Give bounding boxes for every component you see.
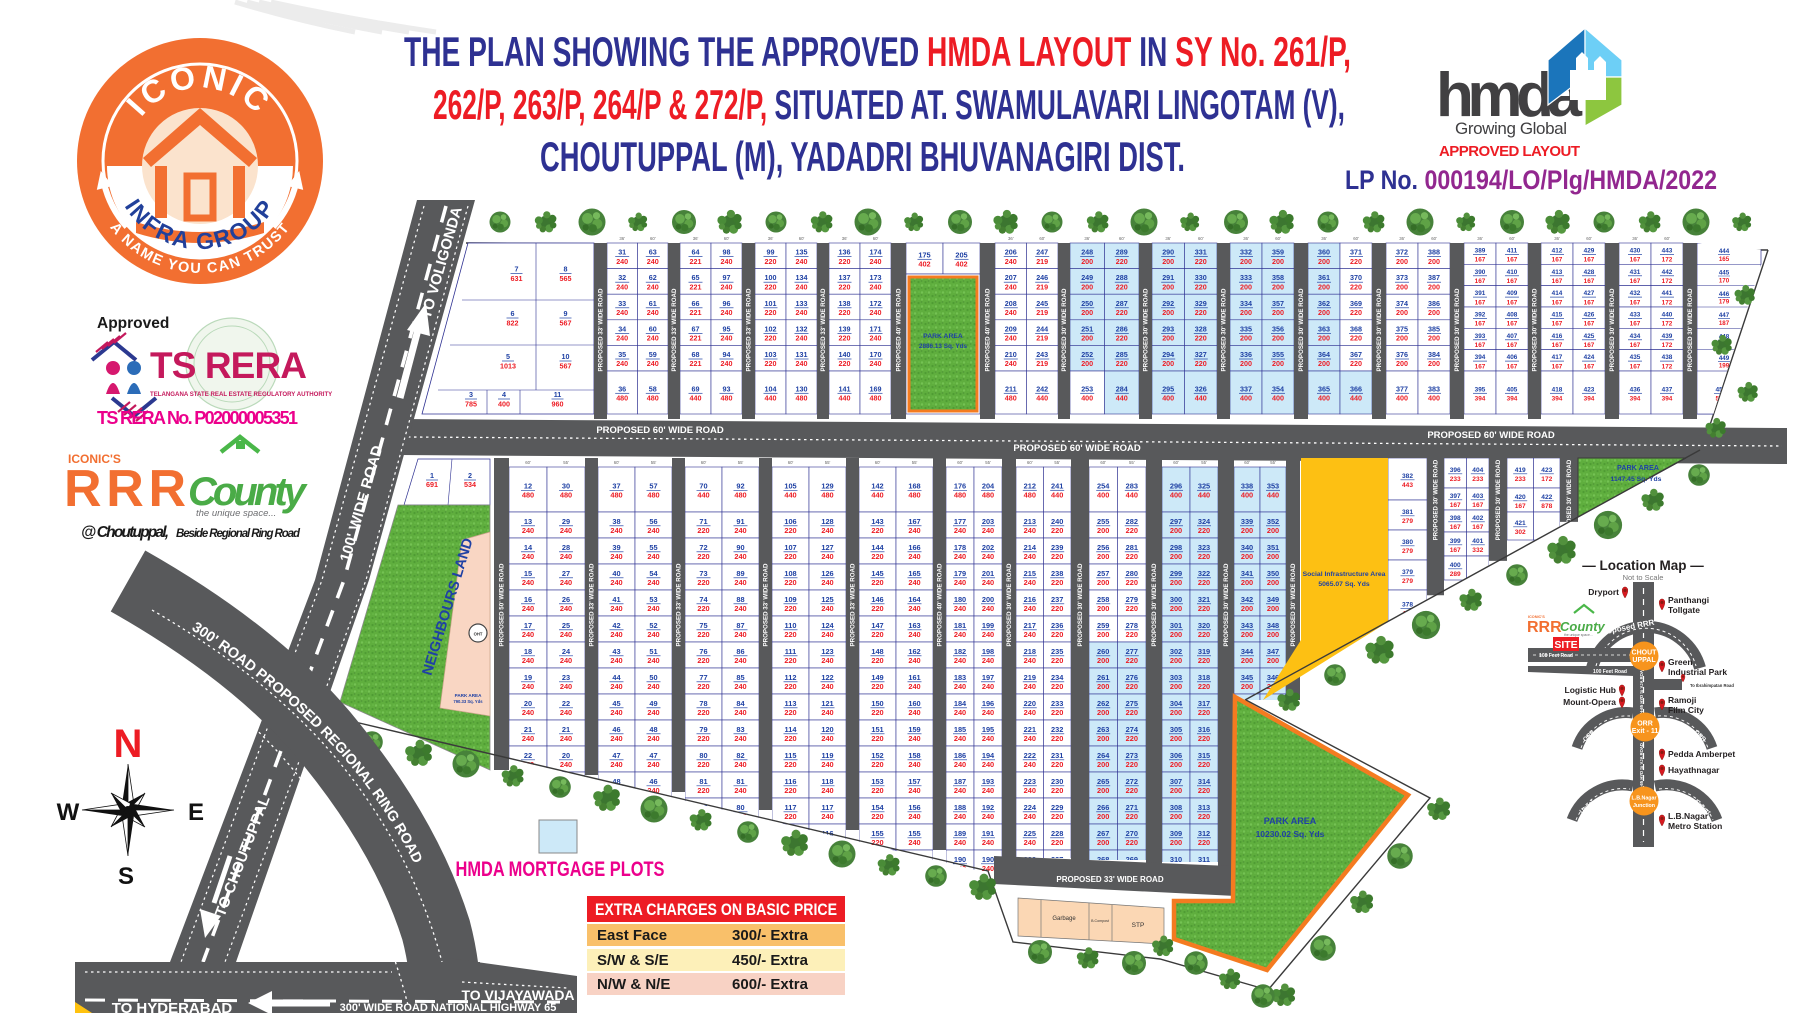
svg-text:411: 411 <box>1507 248 1518 255</box>
svg-text:43: 43 <box>612 647 620 656</box>
svg-text:394: 394 <box>1584 396 1595 403</box>
svg-text:138: 138 <box>839 299 851 308</box>
svg-text:220: 220 <box>1198 838 1210 847</box>
svg-text:213: 213 <box>1024 517 1036 526</box>
svg-text:240: 240 <box>734 708 746 717</box>
svg-text:691: 691 <box>426 480 438 489</box>
svg-text:220: 220 <box>1051 656 1063 665</box>
svg-text:190: 190 <box>954 855 966 864</box>
svg-text:240: 240 <box>734 630 746 639</box>
svg-text:240: 240 <box>647 308 659 317</box>
svg-text:PROPOSED 33' WIDE ROAD: PROPOSED 33' WIDE ROAD <box>850 563 857 646</box>
svg-text:88: 88 <box>736 595 744 604</box>
svg-text:188: 188 <box>954 803 966 812</box>
svg-text:60': 60' <box>525 460 531 465</box>
svg-text:173: 173 <box>870 273 882 282</box>
svg-text:279: 279 <box>1402 578 1413 585</box>
svg-text:167: 167 <box>1552 299 1563 306</box>
svg-text:245: 245 <box>1036 299 1048 308</box>
svg-text:200: 200 <box>1170 812 1182 821</box>
svg-text:105: 105 <box>784 481 796 490</box>
svg-text:200: 200 <box>1097 708 1109 717</box>
svg-text:240: 240 <box>1024 604 1036 613</box>
svg-text:437: 437 <box>1662 386 1673 393</box>
svg-text:NH-65 HYD to VJA ROAD: NH-65 HYD to VJA ROAD <box>1639 743 1644 793</box>
svg-text:23: 23 <box>562 673 570 682</box>
svg-text:240: 240 <box>1024 578 1036 587</box>
svg-text:SITE: SITE <box>1554 639 1577 651</box>
svg-text:347: 347 <box>1267 647 1279 656</box>
svg-text:60': 60' <box>1100 460 1106 465</box>
svg-text:480: 480 <box>870 394 882 403</box>
svg-text:299: 299 <box>1170 569 1182 578</box>
svg-text:74: 74 <box>699 595 708 604</box>
svg-text:200: 200 <box>1097 734 1109 743</box>
svg-text:420: 420 <box>1515 494 1526 501</box>
svg-text:480: 480 <box>821 491 833 500</box>
svg-text:PROPOSED 30' WIDE ROAD: PROPOSED 30' WIDE ROAD <box>1567 459 1573 540</box>
svg-text:386: 386 <box>1428 299 1440 308</box>
svg-text:65: 65 <box>692 273 700 282</box>
svg-text:255: 255 <box>1097 517 1109 526</box>
svg-text:240: 240 <box>1024 682 1036 691</box>
svg-text:240: 240 <box>796 359 808 368</box>
svg-text:240: 240 <box>870 282 882 291</box>
svg-text:410: 410 <box>1507 269 1518 276</box>
svg-text:62: 62 <box>649 273 657 282</box>
svg-text:394: 394 <box>1552 396 1563 403</box>
svg-text:416: 416 <box>1552 333 1563 340</box>
svg-text:STP: STP <box>1132 922 1145 929</box>
svg-text:195: 195 <box>982 725 994 734</box>
svg-text:RRR: RRR <box>64 460 186 518</box>
svg-text:PROPOSED 40' WIDE ROAD: PROPOSED 40' WIDE ROAD <box>896 288 903 371</box>
svg-text:220: 220 <box>1198 786 1210 795</box>
svg-text:314: 314 <box>1198 777 1211 786</box>
svg-text:240: 240 <box>954 734 966 743</box>
svg-text:240: 240 <box>982 786 994 795</box>
svg-text:220: 220 <box>1350 359 1362 368</box>
svg-text:320: 320 <box>1198 621 1210 630</box>
svg-text:240: 240 <box>870 359 882 368</box>
svg-text:162: 162 <box>908 647 920 656</box>
svg-text:394: 394 <box>1507 396 1518 403</box>
svg-text:321: 321 <box>1198 595 1210 604</box>
svg-text:440: 440 <box>1198 491 1210 500</box>
svg-text:144: 144 <box>871 543 884 552</box>
svg-text:167: 167 <box>1475 257 1486 264</box>
svg-text:145: 145 <box>871 569 883 578</box>
svg-text:183: 183 <box>954 673 966 682</box>
svg-text:175: 175 <box>918 250 930 259</box>
svg-text:137: 137 <box>839 273 851 282</box>
svg-text:189: 189 <box>954 829 966 838</box>
svg-text:167: 167 <box>1552 321 1563 328</box>
svg-text:9: 9 <box>564 309 568 318</box>
svg-text:240: 240 <box>616 308 628 317</box>
svg-text:291: 291 <box>1162 273 1174 282</box>
svg-text:240: 240 <box>647 334 659 343</box>
svg-text:326: 326 <box>1195 384 1207 393</box>
svg-text:352: 352 <box>1267 517 1279 526</box>
svg-text:436: 436 <box>1630 386 1641 393</box>
svg-text:319: 319 <box>1198 647 1210 656</box>
svg-text:200: 200 <box>1241 526 1253 535</box>
svg-text:PROPOSED 33' WIDE ROAD: PROPOSED 33' WIDE ROAD <box>820 288 827 371</box>
svg-text:36': 36' <box>1084 236 1090 241</box>
svg-text:328: 328 <box>1195 324 1207 333</box>
svg-text:278: 278 <box>1126 621 1138 630</box>
svg-text:60': 60' <box>1353 236 1359 241</box>
svg-text:378: 378 <box>1402 601 1413 608</box>
svg-text:36': 36' <box>693 236 699 241</box>
svg-text:112: 112 <box>785 673 797 682</box>
svg-text:365: 365 <box>1318 384 1330 393</box>
svg-text:21: 21 <box>562 725 570 734</box>
svg-text:375: 375 <box>1396 324 1408 333</box>
svg-text:220: 220 <box>1024 699 1036 708</box>
svg-text:L.B.Nagar: L.B.Nagar <box>1631 796 1656 802</box>
svg-text:240: 240 <box>954 682 966 691</box>
svg-text:240: 240 <box>734 760 746 769</box>
svg-text:81: 81 <box>736 777 744 786</box>
svg-text:6: 6 <box>511 309 515 318</box>
svg-text:163: 163 <box>908 621 920 630</box>
svg-text:200: 200 <box>1170 578 1182 587</box>
svg-text:L.B.Nagar: L.B.Nagar <box>1668 811 1709 821</box>
svg-text:219: 219 <box>1036 334 1048 343</box>
svg-text:59: 59 <box>649 350 657 359</box>
svg-text:PROPOSED 33' WIDE ROAD: PROPOSED 33' WIDE ROAD <box>589 563 596 646</box>
svg-text:107: 107 <box>784 543 796 552</box>
svg-text:240: 240 <box>647 734 659 743</box>
svg-text:89: 89 <box>736 569 744 578</box>
svg-text:407: 407 <box>1507 333 1518 340</box>
svg-text:240: 240 <box>647 656 659 665</box>
svg-text:240: 240 <box>982 526 994 535</box>
svg-text:427: 427 <box>1584 290 1595 297</box>
svg-text:413: 413 <box>1552 269 1563 276</box>
svg-text:359: 359 <box>1272 248 1284 257</box>
svg-text:167: 167 <box>1475 342 1486 349</box>
svg-text:403: 403 <box>1472 493 1483 500</box>
svg-text:349: 349 <box>1267 595 1279 604</box>
svg-text:447: 447 <box>1719 312 1730 319</box>
svg-text:237: 237 <box>1051 595 1063 604</box>
svg-text:200: 200 <box>1081 282 1093 291</box>
svg-text:167: 167 <box>1552 363 1563 370</box>
svg-text:PROPOSED 60' WIDE ROAD: PROPOSED 60' WIDE ROAD <box>596 425 724 436</box>
svg-text:55': 55' <box>1201 460 1207 465</box>
svg-text:231: 231 <box>1051 751 1063 760</box>
svg-text:240: 240 <box>560 552 572 561</box>
svg-text:APPROVED LAYOUT: APPROVED LAYOUT <box>1439 143 1580 160</box>
svg-text:HMDA MORTGAGE PLOTS: HMDA MORTGAGE PLOTS <box>456 857 665 881</box>
svg-text:300' WIDE ROAD NATIONAL HIGHWA: 300' WIDE ROAD NATIONAL HIGHWAY 65 <box>340 1002 557 1013</box>
svg-text:480: 480 <box>560 491 572 500</box>
svg-text:36': 36' <box>768 236 774 241</box>
svg-text:60': 60' <box>1119 236 1125 241</box>
svg-text:142: 142 <box>871 481 883 490</box>
svg-text:36': 36' <box>1477 236 1483 241</box>
svg-text:36': 36' <box>842 236 848 241</box>
svg-text:155: 155 <box>908 829 920 838</box>
svg-text:440: 440 <box>1350 394 1362 403</box>
svg-text:565: 565 <box>560 274 572 283</box>
svg-text:221: 221 <box>1024 725 1036 734</box>
svg-text:426: 426 <box>1584 312 1595 319</box>
svg-text:200: 200 <box>1318 334 1330 343</box>
svg-text:283: 283 <box>1126 481 1138 490</box>
svg-text:298: 298 <box>1170 543 1182 552</box>
svg-text:220: 220 <box>1051 734 1063 743</box>
svg-text:220: 220 <box>1198 734 1210 743</box>
svg-text:240: 240 <box>982 812 994 821</box>
svg-text:295: 295 <box>1162 384 1174 393</box>
svg-text:220: 220 <box>871 708 883 717</box>
svg-text:399: 399 <box>1450 538 1461 545</box>
svg-text:240: 240 <box>908 708 920 717</box>
svg-text:1147.45 Sq. Yds: 1147.45 Sq. Yds <box>1611 476 1662 483</box>
svg-text:Beside Regional Ring Road: Beside Regional Ring Road <box>176 528 301 540</box>
svg-text:281: 281 <box>1126 543 1138 552</box>
svg-text:240: 240 <box>821 760 833 769</box>
svg-text:394: 394 <box>1630 396 1641 403</box>
svg-text:60': 60' <box>799 236 805 241</box>
svg-text:440: 440 <box>871 491 883 500</box>
svg-text:200: 200 <box>1272 308 1284 317</box>
svg-text:402: 402 <box>918 260 930 269</box>
svg-text:290: 290 <box>1162 248 1174 257</box>
svg-text:220: 220 <box>1198 708 1210 717</box>
svg-text:172: 172 <box>1662 363 1673 370</box>
svg-text:534: 534 <box>464 480 476 489</box>
svg-text:266: 266 <box>1097 803 1109 812</box>
svg-text:284: 284 <box>1116 384 1128 393</box>
svg-text:186: 186 <box>954 751 966 760</box>
svg-text:404: 404 <box>1472 467 1483 474</box>
svg-text:240: 240 <box>908 526 920 535</box>
svg-text:3: 3 <box>469 390 473 399</box>
svg-text:323: 323 <box>1198 543 1210 552</box>
svg-text:125: 125 <box>821 595 833 604</box>
svg-text:480: 480 <box>522 491 534 500</box>
svg-text:200: 200 <box>982 595 994 604</box>
svg-text:PROPOSED 60' WIDE ROAD: PROPOSED 60' WIDE ROAD <box>1427 430 1555 441</box>
svg-text:To Ibrahimpatan Road: To Ibrahimpatan Road <box>1690 683 1734 688</box>
svg-text:169: 169 <box>870 384 882 393</box>
svg-text:200: 200 <box>1396 257 1408 266</box>
svg-text:343: 343 <box>1241 621 1253 630</box>
svg-text:240: 240 <box>647 630 659 639</box>
svg-text:240: 240 <box>616 359 628 368</box>
svg-text:240: 240 <box>610 760 622 769</box>
svg-text:92: 92 <box>736 481 744 490</box>
svg-text:167: 167 <box>1507 321 1518 328</box>
svg-text:305: 305 <box>1170 725 1182 734</box>
svg-text:306: 306 <box>1170 751 1182 760</box>
svg-text:167: 167 <box>1472 524 1483 531</box>
svg-text:240: 240 <box>954 604 966 613</box>
svg-text:164: 164 <box>908 595 921 604</box>
svg-text:PROPOSED 30' WIDE ROAD: PROPOSED 30' WIDE ROAD <box>1061 288 1068 371</box>
svg-text:15: 15 <box>524 569 532 578</box>
svg-text:440: 440 <box>765 394 777 403</box>
svg-text:200: 200 <box>1428 359 1440 368</box>
svg-text:220: 220 <box>784 604 796 613</box>
svg-text:36': 36' <box>1165 236 1171 241</box>
svg-text:200: 200 <box>1097 578 1109 587</box>
svg-text:205: 205 <box>955 250 967 259</box>
svg-text:200: 200 <box>1241 552 1253 561</box>
svg-text:240: 240 <box>821 630 833 639</box>
svg-text:220: 220 <box>871 552 883 561</box>
svg-text:S/W & S/E: S/W & S/E <box>597 952 669 969</box>
svg-text:198: 198 <box>982 647 994 656</box>
svg-text:165: 165 <box>908 569 920 578</box>
svg-text:220: 220 <box>1126 734 1138 743</box>
svg-text:240: 240 <box>610 552 622 561</box>
svg-text:262/P, 263/P, 264/P & 272/P, S: 262/P, 263/P, 264/P & 272/P, SITUATED AT… <box>433 81 1345 128</box>
svg-text:Film City: Film City <box>1668 705 1704 715</box>
svg-text:100: 100 <box>765 273 777 282</box>
svg-text:200: 200 <box>1162 359 1174 368</box>
svg-text:357: 357 <box>1272 299 1284 308</box>
svg-text:167: 167 <box>1584 299 1595 306</box>
svg-text:362: 362 <box>1318 299 1330 308</box>
svg-text:243: 243 <box>1036 350 1048 359</box>
svg-text:303: 303 <box>1170 673 1182 682</box>
svg-text:2886.13 Sq. Yds: 2886.13 Sq. Yds <box>919 343 968 350</box>
svg-text:288: 288 <box>1116 273 1128 282</box>
svg-text:113: 113 <box>785 699 797 708</box>
svg-text:177: 177 <box>954 517 966 526</box>
svg-text:240: 240 <box>908 604 920 613</box>
svg-text:167: 167 <box>1507 363 1518 370</box>
svg-text:383: 383 <box>1428 384 1440 393</box>
svg-text:200: 200 <box>1318 359 1330 368</box>
svg-text:206: 206 <box>1005 248 1017 257</box>
svg-text:45: 45 <box>612 699 620 708</box>
svg-text:220: 220 <box>871 812 883 821</box>
svg-text:11: 11 <box>554 390 562 399</box>
svg-text:200: 200 <box>1097 682 1109 691</box>
svg-text:167: 167 <box>1507 299 1518 306</box>
svg-text:567: 567 <box>560 318 572 327</box>
svg-text:PROPOSED 30' WIDE ROAD: PROPOSED 30' WIDE ROAD <box>1434 459 1440 540</box>
svg-text:419: 419 <box>1515 467 1526 474</box>
svg-text:178: 178 <box>954 543 966 552</box>
svg-text:221: 221 <box>690 257 702 266</box>
svg-text:168: 168 <box>908 481 920 490</box>
svg-text:240: 240 <box>647 578 659 587</box>
svg-text:167: 167 <box>1630 342 1641 349</box>
svg-text:338: 338 <box>1241 481 1253 490</box>
svg-text:87: 87 <box>736 621 744 630</box>
svg-text:200: 200 <box>1162 257 1174 266</box>
svg-text:240: 240 <box>870 257 882 266</box>
svg-text:139: 139 <box>839 324 851 333</box>
svg-text:438: 438 <box>1662 354 1673 361</box>
svg-text:Dryport: Dryport <box>1588 587 1619 597</box>
svg-text:220: 220 <box>697 578 709 587</box>
svg-text:220: 220 <box>1051 604 1063 613</box>
svg-text:220: 220 <box>697 708 709 717</box>
svg-text:240: 240 <box>982 734 994 743</box>
svg-text:2: 2 <box>468 471 472 480</box>
svg-text:PROPOSED 30' WIDE ROAD: PROPOSED 30' WIDE ROAD <box>1290 563 1297 646</box>
svg-text:E: E <box>188 799 204 826</box>
svg-text:PROPOSED 30' WIDE ROAD: PROPOSED 30' WIDE ROAD <box>1151 563 1158 646</box>
svg-text:394: 394 <box>1662 396 1673 403</box>
svg-text:220: 220 <box>1126 838 1138 847</box>
svg-text:Logistic Hub: Logistic Hub <box>1565 685 1616 695</box>
svg-text:351: 351 <box>1267 543 1279 552</box>
svg-text:279: 279 <box>1126 595 1138 604</box>
svg-text:72: 72 <box>699 543 707 552</box>
svg-text:423: 423 <box>1584 386 1595 393</box>
svg-text:200: 200 <box>1241 656 1253 665</box>
svg-text:442: 442 <box>1662 269 1673 276</box>
svg-text:220: 220 <box>1198 630 1210 639</box>
svg-text:34: 34 <box>618 324 626 333</box>
svg-text:240: 240 <box>610 630 622 639</box>
svg-text:430: 430 <box>1630 248 1641 255</box>
svg-text:71: 71 <box>699 517 707 526</box>
svg-text:277: 277 <box>1126 647 1138 656</box>
svg-text:341: 341 <box>1241 569 1253 578</box>
svg-text:220: 220 <box>1350 257 1362 266</box>
svg-text:200: 200 <box>1170 656 1182 665</box>
svg-text:220: 220 <box>784 656 796 665</box>
svg-text:221: 221 <box>690 282 702 291</box>
svg-text:200: 200 <box>1240 334 1252 343</box>
svg-text:55': 55' <box>985 460 991 465</box>
svg-text:220: 220 <box>1051 630 1063 639</box>
svg-text:271: 271 <box>1126 803 1138 812</box>
svg-text:79: 79 <box>699 725 707 734</box>
svg-text:S: S <box>118 863 134 890</box>
svg-text:220: 220 <box>1051 552 1063 561</box>
svg-text:240: 240 <box>734 682 746 691</box>
svg-text:422: 422 <box>1541 494 1552 501</box>
svg-text:240: 240 <box>522 734 534 743</box>
svg-text:220: 220 <box>1126 682 1138 691</box>
svg-text:272: 272 <box>1126 777 1138 786</box>
svg-text:240: 240 <box>616 334 628 343</box>
svg-text:55': 55' <box>825 460 831 465</box>
svg-text:240: 240 <box>616 282 628 291</box>
svg-text:200: 200 <box>1097 838 1109 847</box>
svg-text:ORR: ORR <box>1637 721 1653 728</box>
svg-text:220: 220 <box>1198 760 1210 769</box>
svg-text:141: 141 <box>839 384 851 393</box>
svg-text:240: 240 <box>721 282 733 291</box>
svg-text:240: 240 <box>908 630 920 639</box>
svg-text:122: 122 <box>821 673 833 682</box>
svg-text:208: 208 <box>1005 299 1017 308</box>
svg-text:182: 182 <box>954 647 966 656</box>
svg-text:350: 350 <box>1267 569 1279 578</box>
svg-text:220: 220 <box>1198 604 1210 613</box>
svg-text:289: 289 <box>1116 248 1128 257</box>
svg-text:NH-65 HYD to VJA ROAD: NH-65 HYD to VJA ROAD <box>1639 667 1644 717</box>
svg-text:240: 240 <box>610 682 622 691</box>
svg-text:158: 158 <box>908 751 920 760</box>
svg-text:353: 353 <box>1267 481 1279 490</box>
svg-text:Tollgate: Tollgate <box>1668 605 1700 615</box>
svg-text:385: 385 <box>1428 324 1440 333</box>
